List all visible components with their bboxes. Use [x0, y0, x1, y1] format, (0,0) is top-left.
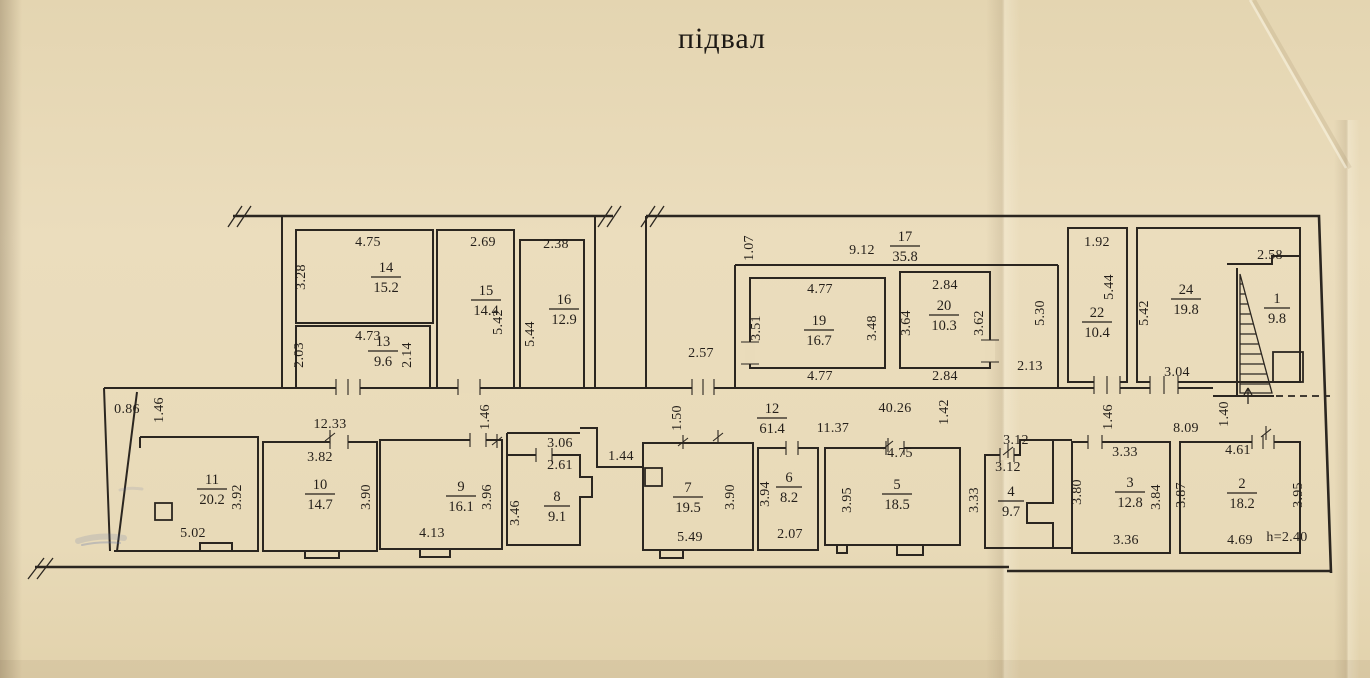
svg-text:9.7: 9.7 [1002, 504, 1020, 520]
svg-text:10: 10 [313, 477, 328, 493]
svg-text:19.8: 19.8 [1173, 302, 1198, 318]
dim-r22-right: 5.44 [1102, 274, 1117, 300]
dim-c12-right-run: 8.09 [1173, 421, 1199, 436]
svg-text:4: 4 [1007, 484, 1015, 500]
svg-text:9: 9 [457, 479, 464, 495]
dim-r2-top: 4.61 [1225, 443, 1251, 458]
dim-r22-top: 1.92 [1084, 235, 1110, 250]
dim-r24-bottom: 3.04 [1164, 365, 1190, 380]
dim-r2-bottom: 4.69 [1227, 533, 1253, 548]
dim-c12-pass: 1.44 [608, 449, 634, 464]
dim-r3-bottom: 3.36 [1113, 533, 1139, 548]
svg-text:20: 20 [937, 298, 952, 314]
dim-r16-top: 2.38 [543, 237, 569, 252]
dim-r19-bottom: 4.77 [807, 369, 833, 384]
dim-r1-top: 2.58 [1257, 248, 1283, 263]
dim-r14-left: 3.28 [294, 264, 309, 290]
dim-c12-right-h2: 1.40 [1217, 401, 1232, 427]
dim-r24-left: 5.42 [1137, 300, 1152, 326]
dim-c12-h: 1.42 [937, 399, 952, 425]
dim-r19-top: 4.77 [807, 282, 833, 297]
dim-c17-top: 9.12 [849, 243, 875, 258]
svg-text:8.2: 8.2 [780, 490, 798, 506]
dim-r20-right: 3.62 [972, 310, 987, 336]
dim-r3-top: 3.33 [1112, 445, 1138, 460]
dim-r19-right: 3.48 [865, 315, 880, 341]
dim-r4-left: 3.33 [967, 487, 982, 513]
dim-r4-top2: 3.12 [995, 460, 1021, 475]
svg-text:18.5: 18.5 [884, 497, 909, 513]
dim-r11-right: 3.92 [230, 484, 245, 510]
svg-text:16.7: 16.7 [806, 333, 831, 349]
dim-r13-right: 2.14 [400, 342, 415, 368]
dim-r13-left: 2.03 [292, 342, 307, 368]
dim-r10-right: 3.90 [359, 484, 374, 510]
dim-c17-left: 1.07 [742, 235, 757, 261]
svg-text:12: 12 [765, 401, 780, 417]
svg-text:5: 5 [893, 477, 900, 493]
svg-text:22: 22 [1090, 305, 1105, 321]
dim-r2-right: 3.95 [1291, 482, 1306, 508]
dim-r6-left: 3.94 [758, 481, 773, 507]
dim-r16-left: 5.44 [523, 321, 538, 347]
dim-c12-left-h: 1.46 [152, 397, 167, 423]
svg-text:12.8: 12.8 [1117, 495, 1142, 511]
svg-text:2: 2 [1238, 476, 1245, 492]
svg-text:9.6: 9.6 [374, 354, 392, 370]
plan-title: підвал [678, 22, 766, 55]
floor-plan-basement: підвал [0, 0, 1370, 678]
svg-text:15: 15 [479, 283, 494, 299]
dim-r8-left: 3.46 [508, 500, 523, 526]
svg-text:10.3: 10.3 [931, 318, 956, 334]
svg-text:24: 24 [1179, 282, 1194, 298]
svg-text:6: 6 [785, 470, 792, 486]
paper-right-crease [1334, 120, 1360, 678]
svg-text:17: 17 [898, 229, 913, 245]
dim-r5-top: 4.75 [887, 446, 913, 461]
dim-r11-bottom: 5.02 [180, 526, 206, 541]
svg-text:7: 7 [684, 480, 691, 496]
dim-r20-top: 2.84 [932, 278, 958, 293]
dim-r9-right: 3.96 [480, 484, 495, 510]
svg-text:8: 8 [553, 489, 560, 505]
svg-text:35.8: 35.8 [892, 249, 917, 265]
dim-r20-left: 3.64 [899, 310, 914, 336]
svg-text:9.1: 9.1 [548, 509, 566, 525]
paper-center-crease [986, 0, 1020, 678]
svg-text:15.2: 15.2 [373, 280, 398, 296]
dim-r8-top: 3.06 [547, 436, 573, 451]
dim-r8-top2: 2.61 [547, 458, 573, 473]
dim-c12-left-run: 12.33 [314, 417, 347, 432]
dim-r15-top: 2.69 [470, 235, 496, 250]
paper-bottom-shade [0, 660, 1370, 678]
dim-c12-right-h: 1.46 [1101, 404, 1116, 430]
dim-r15-right: 5.42 [491, 309, 506, 335]
svg-text:19.5: 19.5 [675, 500, 700, 516]
svg-text:20.2: 20.2 [199, 492, 224, 508]
dim-r2-left: 3.87 [1174, 482, 1189, 508]
ceiling-height-note: h=2.40 [1266, 530, 1307, 545]
dim-r19-left: 3.51 [749, 315, 764, 341]
svg-text:18.2: 18.2 [1229, 496, 1254, 512]
dim-r9-bottom: 4.13 [419, 526, 445, 541]
svg-text:10.4: 10.4 [1084, 325, 1110, 341]
dim-c12-left-w: 0.86 [114, 402, 140, 417]
svg-text:61.4: 61.4 [759, 421, 785, 437]
svg-text:19: 19 [812, 313, 827, 329]
dim-r14-top: 4.75 [355, 235, 381, 250]
dim-c12-run2: 11.37 [817, 421, 849, 436]
dim-c12-run: 40.26 [879, 401, 912, 416]
dim-r6-bottom: 2.07 [777, 527, 803, 542]
svg-text:16: 16 [557, 292, 572, 308]
svg-text:9.8: 9.8 [1268, 311, 1286, 327]
dim-c17-entry: 2.57 [688, 346, 714, 361]
svg-text:14: 14 [379, 260, 394, 276]
svg-text:3: 3 [1126, 475, 1133, 491]
dim-c12-mid-h: 1.46 [478, 404, 493, 430]
paper-left-shadow [0, 0, 22, 678]
svg-text:12.9: 12.9 [551, 312, 576, 328]
svg-text:16.1: 16.1 [448, 499, 473, 515]
dim-r4-top: 3.12 [1003, 433, 1029, 448]
dim-c12-step: 1.50 [670, 405, 685, 431]
paper-background [0, 0, 1370, 678]
dim-r5-left: 3.95 [840, 487, 855, 513]
dim-r20-bottom: 2.84 [932, 369, 958, 384]
dim-r7-right: 3.90 [723, 484, 738, 510]
dim-r13-top: 4.73 [355, 329, 381, 344]
svg-text:1: 1 [1273, 291, 1280, 307]
svg-text:11: 11 [205, 472, 219, 488]
dim-r7-bottom: 5.49 [677, 530, 703, 545]
svg-text:14.7: 14.7 [307, 497, 332, 513]
dim-r10-top: 3.82 [307, 450, 333, 465]
dim-r3-right: 3.84 [1149, 484, 1164, 510]
dim-c17-side: 5.30 [1033, 300, 1048, 326]
dim-r3-left: 3.80 [1070, 479, 1085, 505]
scanned-floor-plan-sheet: підвал [0, 0, 1370, 678]
dim-c17-right: 2.13 [1017, 359, 1043, 374]
